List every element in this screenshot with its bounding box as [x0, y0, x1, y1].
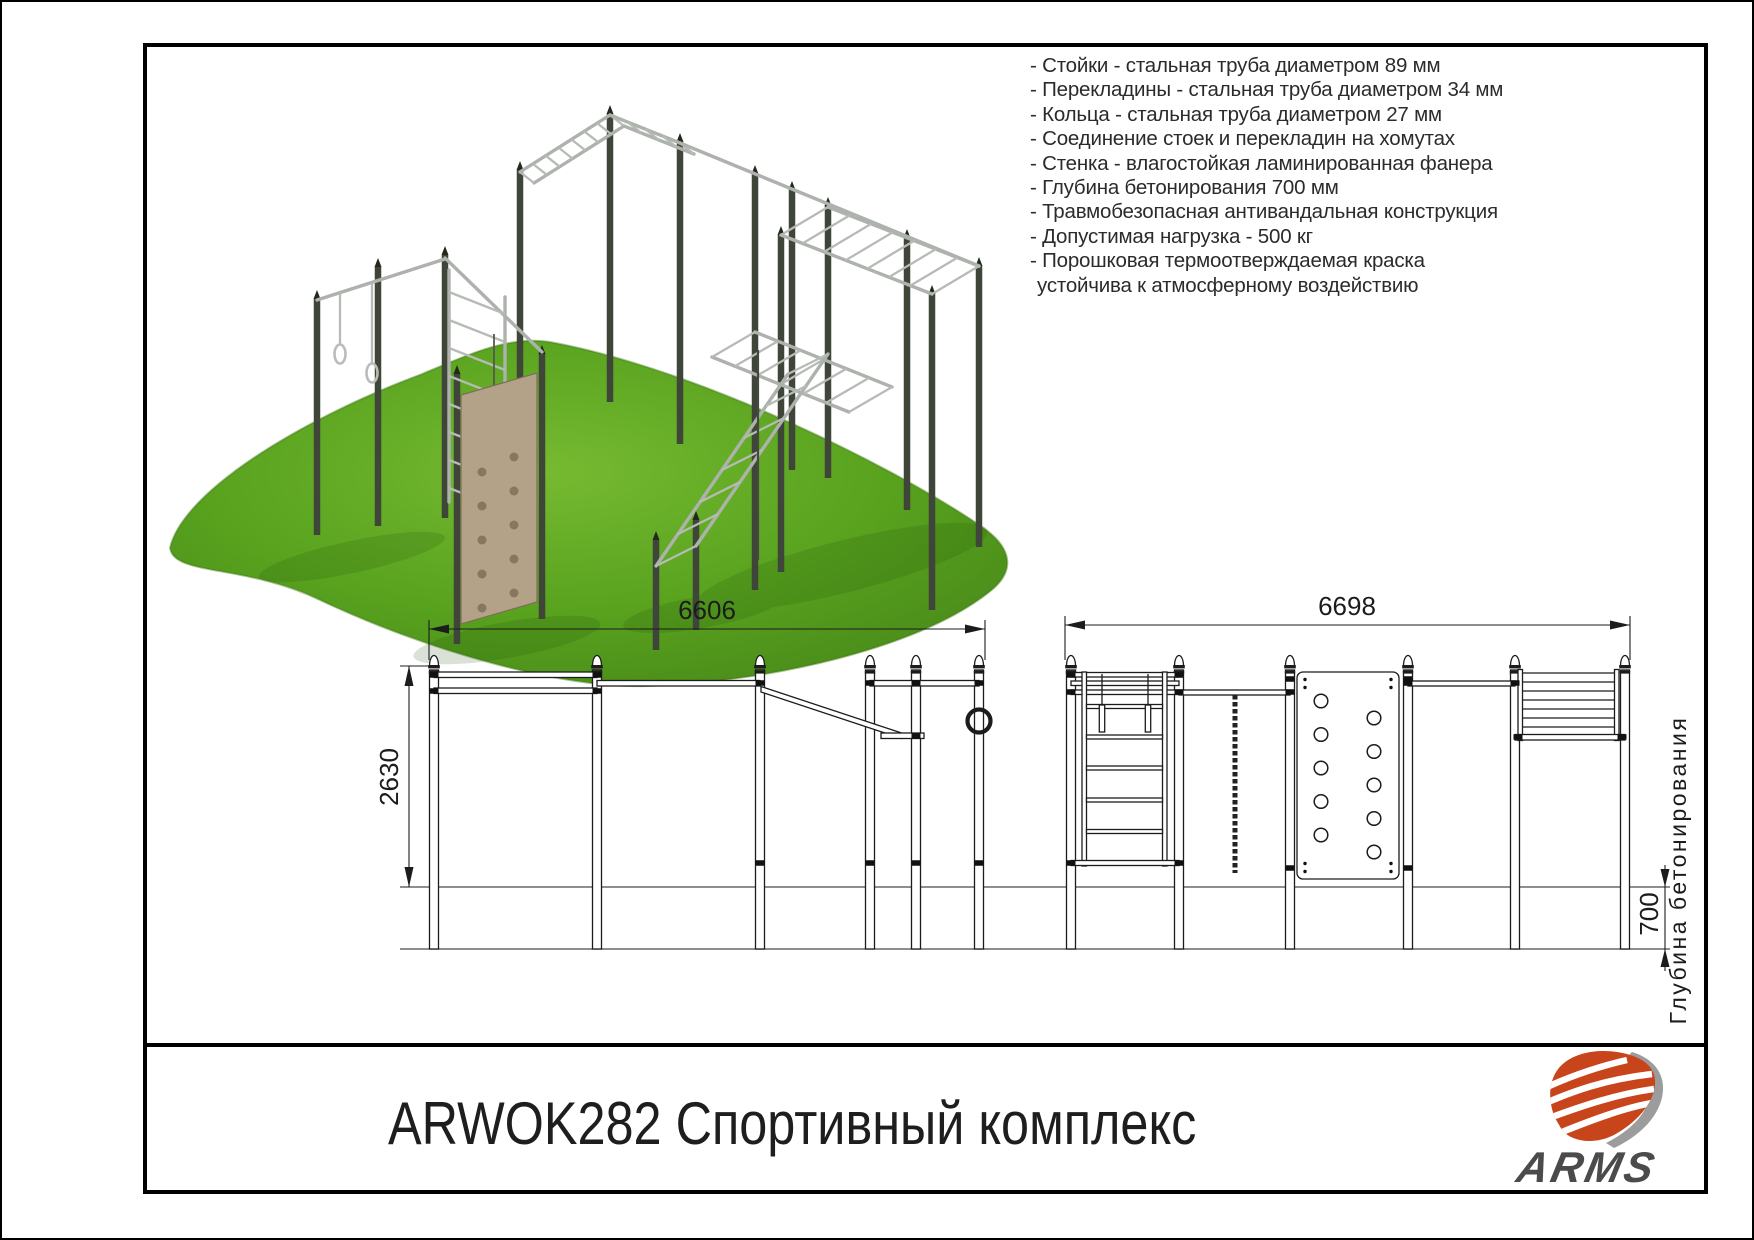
- spec-line: - Допустимая нагрузка - 500 кг: [1030, 225, 1550, 249]
- spec-line: - Перекладины - стальная труба диаметром…: [1030, 78, 1550, 102]
- titleblock-divider: [143, 1043, 1708, 1047]
- spec-line: устойчива к атмосферному воздействию: [1030, 274, 1550, 298]
- spec-line: - Стенка - влагостойкая ламинированная ф…: [1030, 152, 1550, 176]
- datasheet-page: 6606 6698 2630 700: [0, 0, 1754, 1240]
- spec-line: - Глубина бетонирования 700 мм: [1030, 176, 1550, 200]
- titleblock: ARWOK282 Спортивный комплекс: [145, 1088, 1439, 1158]
- spec-line: - Порошковая термоотверждаемая краска: [1030, 249, 1550, 273]
- spec-line: - Травмобезопасная антивандальная констр…: [1030, 200, 1550, 224]
- spec-line: - Кольца - стальная труба диаметром 27 м…: [1030, 103, 1550, 127]
- page-title: ARWOK282 Спортивный комплекс: [388, 1089, 1196, 1158]
- spec-line: - Соединение стоек и перекладин на хомут…: [1030, 127, 1550, 151]
- spec-line: - Стойки - стальная труба диаметром 89 м…: [1030, 54, 1550, 78]
- spec-list: - Стойки - стальная труба диаметром 89 м…: [1030, 54, 1550, 298]
